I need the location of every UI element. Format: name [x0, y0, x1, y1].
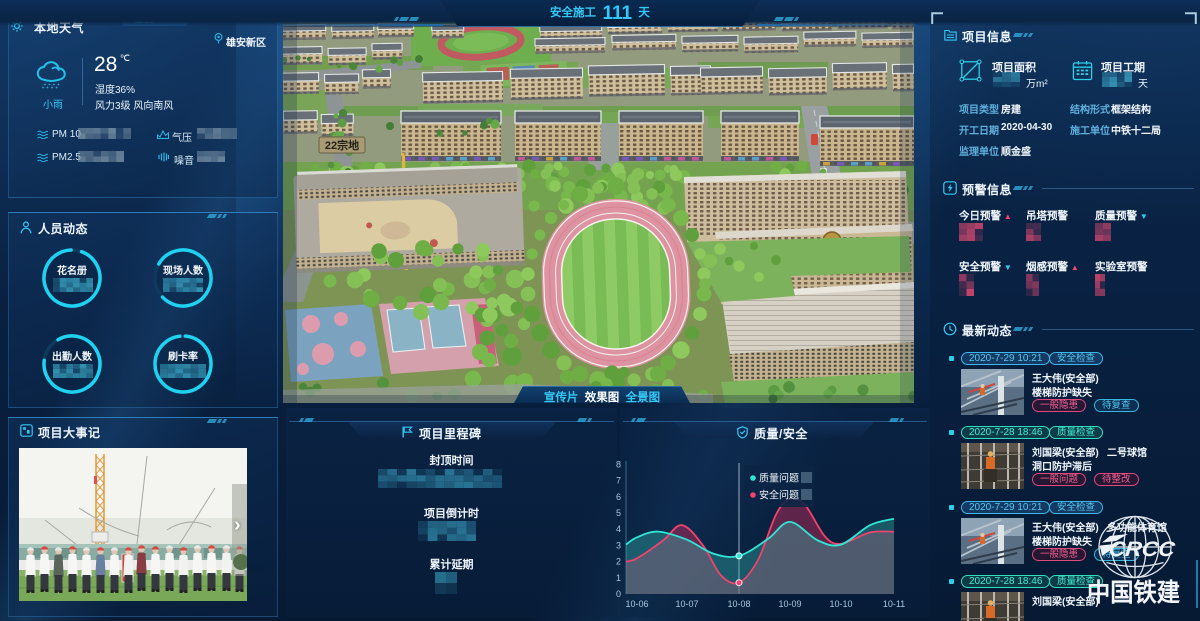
svg-text:CRCC: CRCC	[1108, 538, 1177, 561]
svg-text:2: 2	[616, 557, 621, 567]
svg-text:10-11: 10-11	[883, 599, 905, 609]
svg-text:0: 0	[616, 589, 621, 599]
svg-text:3: 3	[616, 540, 621, 550]
svg-text:10-08: 10-08	[727, 599, 750, 609]
svg-text:7: 7	[616, 476, 621, 486]
svg-text:22宗地: 22宗地	[325, 138, 359, 152]
svg-text:10-06: 10-06	[625, 599, 648, 609]
svg-text:质量问题: 质量问题	[759, 472, 799, 485]
svg-text:10-09: 10-09	[778, 599, 801, 609]
svg-text:安全问题: 安全问题	[759, 489, 799, 502]
svg-text:中国铁建: 中国铁建	[1087, 579, 1180, 607]
svg-text:1: 1	[616, 573, 621, 583]
svg-text:6: 6	[616, 492, 621, 502]
svg-text:5: 5	[616, 508, 621, 518]
svg-text:8: 8	[616, 459, 621, 469]
svg-text:4: 4	[616, 524, 621, 534]
svg-text:10-07: 10-07	[675, 599, 698, 609]
svg-text:10-10: 10-10	[829, 599, 852, 609]
